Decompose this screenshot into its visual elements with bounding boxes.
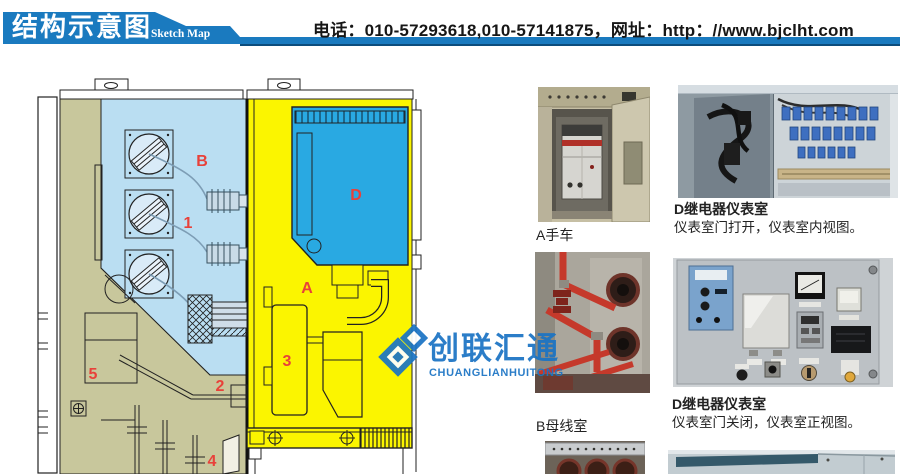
logo-mark-icon: [378, 324, 428, 377]
photo-a-handcart: [538, 87, 650, 222]
photo-bottom-right-cropped: [668, 450, 895, 474]
zone-label-5: 5: [89, 366, 98, 383]
instrument-compartment-region: [292, 107, 408, 265]
caption-d-closed-sub: 仪表室门关闭，仪表室正视图。: [672, 411, 861, 431]
zone-label-A: A: [301, 280, 313, 297]
zone-label-D: D: [350, 187, 362, 204]
opened-door: [678, 94, 774, 198]
zone-label-B: B: [196, 153, 208, 170]
vent-grille: [295, 111, 405, 123]
control-relay: [797, 312, 823, 348]
small-meter: [837, 288, 861, 320]
cabinet-base-area: [247, 448, 412, 474]
page-subtitle: Sketch Map: [151, 28, 210, 40]
bottom-rail: [247, 428, 412, 448]
page-title: 结构示意图: [12, 12, 152, 42]
banner-underline: [240, 44, 900, 46]
photo-d-instrument-open: [678, 85, 898, 198]
watermark-latin: CHUANGLIANHUITONG: [429, 367, 564, 379]
instruction-card: [689, 266, 733, 330]
photo-bottom-left-cropped: [545, 441, 645, 474]
caption-b-busbar: B母线室: [536, 416, 587, 436]
zone-label-1: 1: [184, 215, 193, 232]
caption-d-open-sub: 仪表室门打开，仪表室内视图。: [674, 216, 863, 236]
caption-a-handcart: A手车: [536, 225, 573, 245]
photo-d-instrument-closed: [673, 258, 893, 387]
indicator-window: [831, 326, 871, 353]
zone-label-2: 2: [216, 378, 225, 395]
wall-bushing-assembly: [188, 295, 247, 343]
watermark-name: 创联汇通: [427, 331, 560, 366]
zone-label-4: 4: [208, 453, 217, 470]
company-watermark: 创联汇通 CHUANGLIANHUITONG: [378, 321, 566, 381]
switchgear-diagram: B 1 D A 3 2 5 4: [35, 75, 425, 474]
catalog-page: 结构示意图 Sketch Map 电话：010-57293618,010-571…: [0, 0, 900, 474]
contact-info: 电话：010-57293618,010-57141875，网址：http：//w…: [313, 16, 854, 41]
breaker-truck: [562, 125, 602, 199]
zone-label-3: 3: [283, 353, 292, 370]
instrument-interior: [774, 94, 898, 198]
